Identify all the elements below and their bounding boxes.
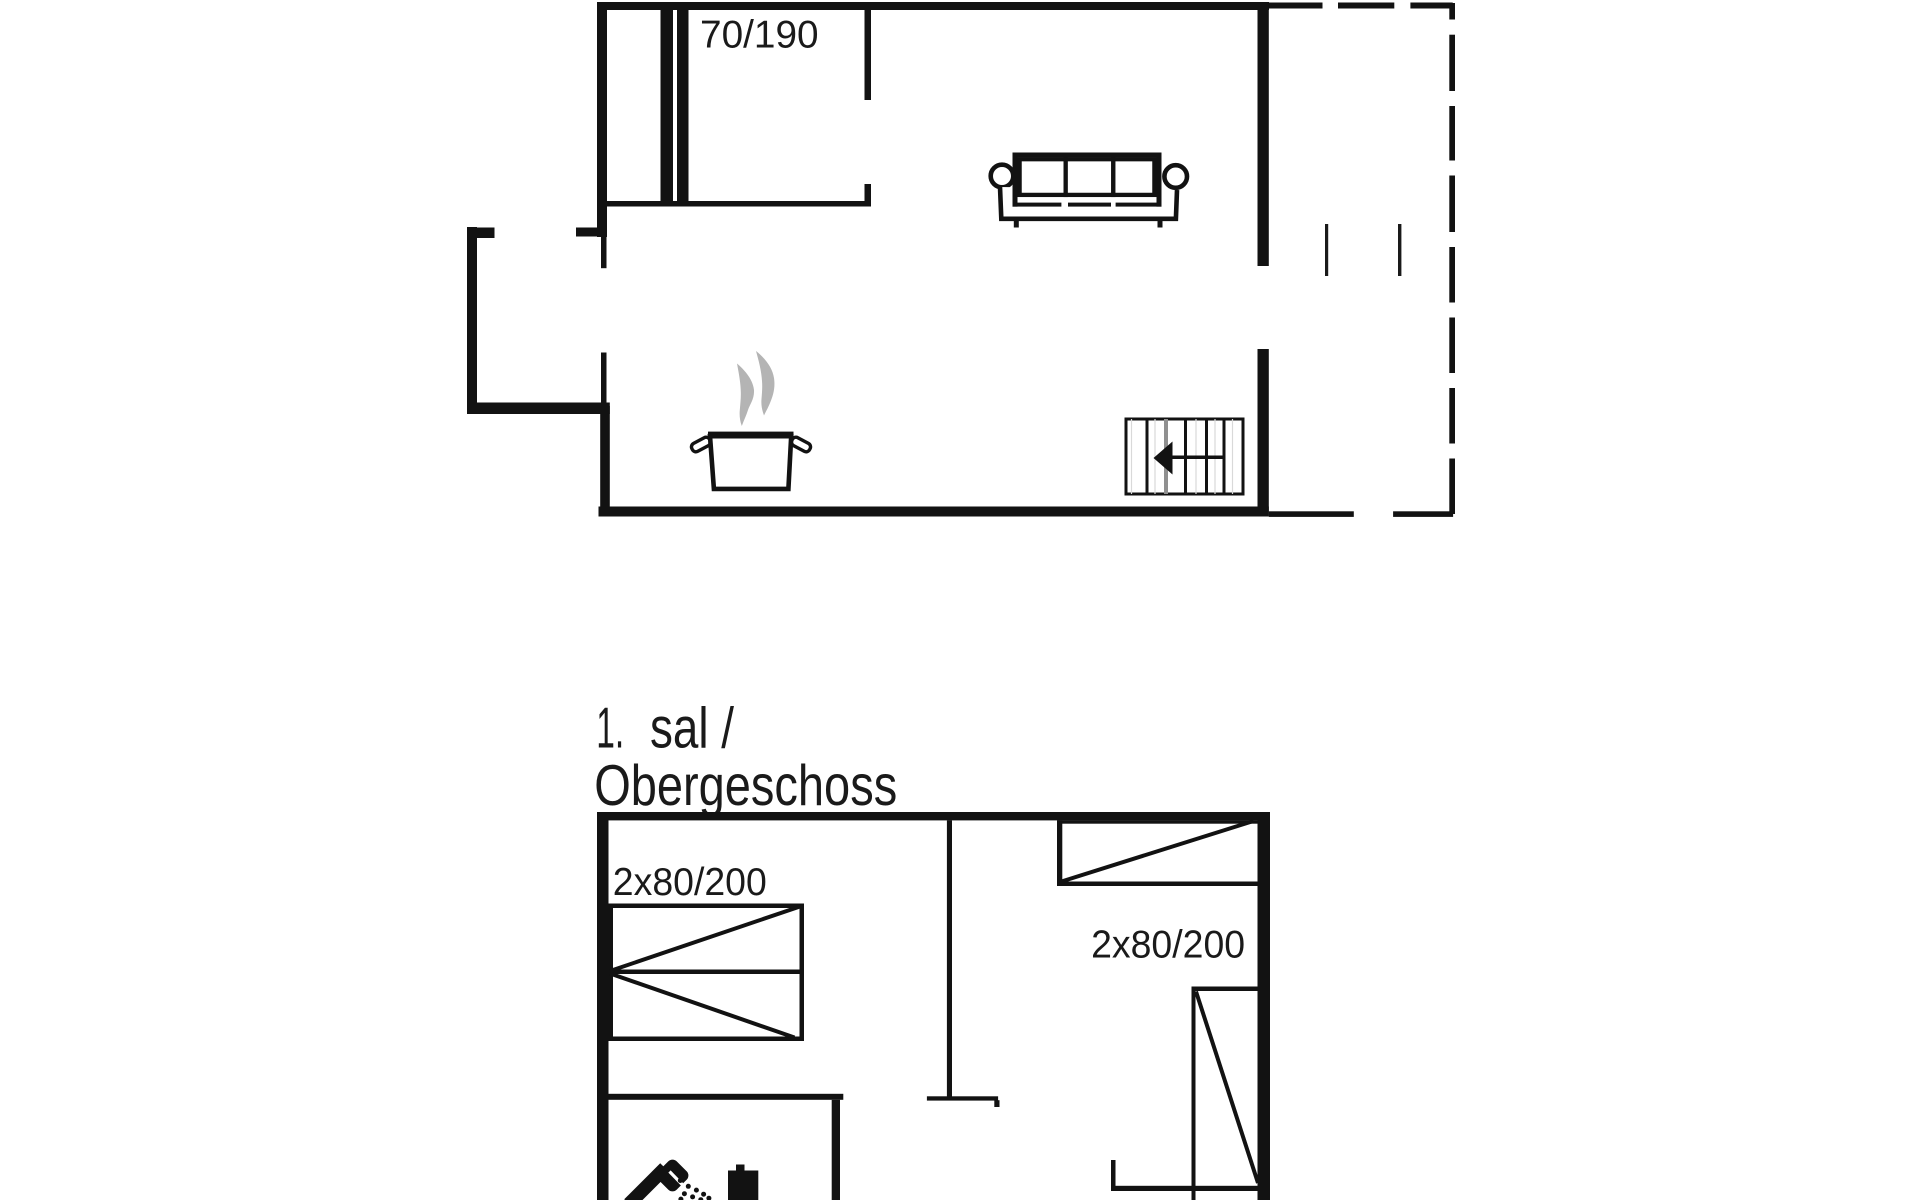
svg-text:1.: 1. (596, 697, 624, 761)
svg-text:2x80/200: 2x80/200 (1091, 924, 1245, 967)
svg-text:2x80/200: 2x80/200 (613, 861, 767, 904)
svg-text:Obergeschoss: Obergeschoss (594, 754, 897, 818)
svg-text:sal /: sal / (650, 697, 734, 761)
svg-text:70/190: 70/190 (700, 14, 819, 57)
